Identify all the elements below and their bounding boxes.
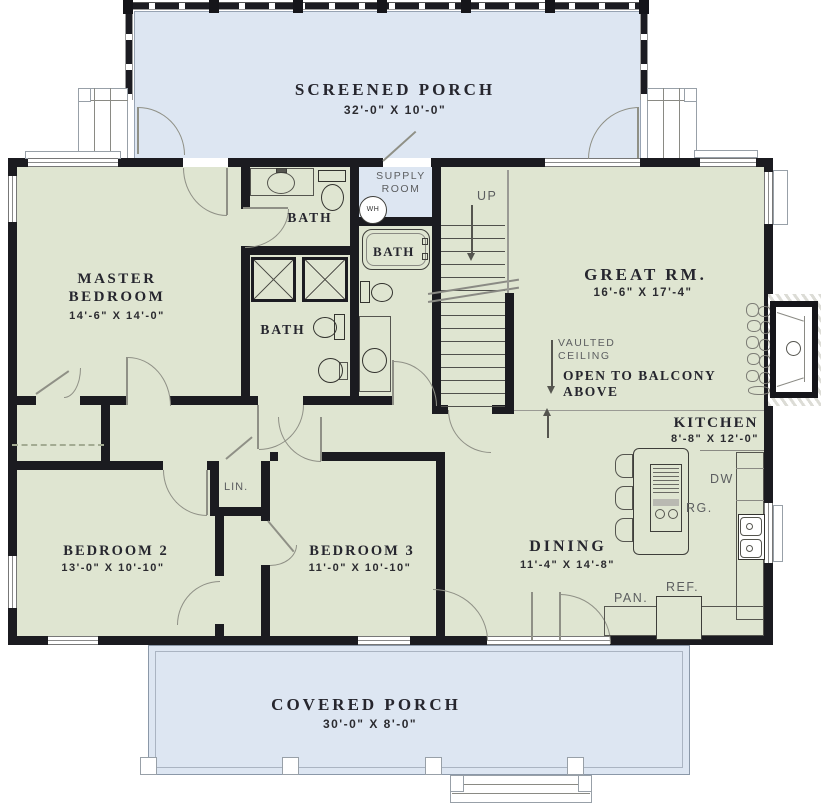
door-great-room-porch	[545, 158, 640, 167]
shower	[302, 257, 348, 302]
room-label-screened-porch: SCREENED PORCH	[245, 80, 545, 100]
room-label-kitchen: KITCHEN	[656, 415, 776, 433]
wall-hall	[303, 396, 393, 405]
window-sill	[694, 150, 758, 158]
firebox-line	[804, 316, 805, 382]
dishwasher-label: DW	[710, 472, 734, 486]
stairs-up-label: UP	[477, 189, 497, 203]
wall-stairs-right	[505, 293, 514, 414]
porch-post	[545, 0, 555, 13]
room-dims-screened-porch: 32'-0" X 10'-0"	[295, 103, 495, 117]
fireplace-stone	[747, 320, 761, 332]
window-bay	[773, 170, 788, 225]
room-dims-master-bedroom: 14'-6" X 14'-0"	[37, 310, 197, 322]
step-post	[450, 775, 464, 792]
open-to-balcony-line1: OPEN TO BALCONY	[563, 368, 753, 384]
door-opening-supply	[383, 158, 431, 167]
window-kitchen-right	[764, 503, 773, 563]
window-bed2-left	[8, 556, 17, 608]
floor-plan: SCREENED PORCH 32'-0" X 10'-0"	[0, 0, 821, 809]
range-grill	[653, 468, 679, 496]
porch-post	[293, 0, 303, 13]
supply-room-label-line1: SUPPLY	[362, 170, 440, 182]
window-great-room-right	[764, 172, 773, 224]
drain	[746, 523, 753, 530]
porch-post	[377, 0, 387, 13]
water-heater-label: WH	[359, 206, 387, 213]
vaulted-ceiling-line2: CEILING	[558, 350, 611, 362]
faucet	[276, 168, 287, 173]
arrow-down-icon	[467, 253, 475, 261]
door-leaf	[531, 592, 533, 640]
refrigerator-label: REF.	[666, 580, 699, 594]
room-label-covered-porch: COVERED PORCH	[216, 695, 516, 715]
refrigerator	[656, 596, 702, 640]
wall-bed-divider-left	[215, 624, 224, 636]
room-label-bath3: BATH	[363, 244, 425, 259]
window-master-left	[8, 176, 17, 222]
fireplace-stone	[747, 353, 760, 365]
step-tread	[452, 784, 590, 785]
sink	[362, 348, 387, 373]
screen-wall-right	[640, 10, 648, 100]
fireplace-stone	[748, 386, 770, 395]
wall-bed3-top	[270, 452, 278, 461]
flue-circle	[786, 341, 801, 356]
porch-post	[461, 0, 471, 13]
drain	[746, 545, 753, 552]
porch-post	[209, 0, 219, 13]
porch-post	[567, 757, 584, 775]
wall-hall	[8, 396, 36, 405]
wall-bed3-top	[322, 452, 445, 461]
stairs-rail-line	[507, 170, 509, 293]
open-to-balcony-line2: ABOVE	[563, 384, 753, 400]
wall-bed2-top	[8, 461, 163, 470]
up-arrow-line	[471, 205, 473, 255]
window-great-room-top	[700, 158, 756, 167]
room-label-master-bedroom: MASTER BEDROOM	[54, 271, 180, 306]
wall-hall	[170, 396, 258, 405]
room-label-bath1: BATH	[275, 210, 345, 226]
fireplace-stone	[746, 370, 759, 382]
room-dims-bedroom-3: 11'-0" X 10'-10"	[285, 562, 435, 574]
counter-line	[736, 468, 764, 469]
burner	[655, 509, 665, 519]
shower	[251, 257, 296, 302]
wall-bed-divider-left	[215, 516, 224, 576]
porch-steps	[450, 775, 592, 803]
stool	[615, 454, 633, 478]
step-tread	[663, 88, 664, 163]
screen-wall-left	[125, 10, 133, 100]
window-bed3-bottom	[358, 636, 410, 645]
vaulted-ceiling-line1: VAULTED	[558, 337, 615, 349]
balcony-arrow-line	[547, 416, 549, 438]
toilet-tank	[360, 281, 370, 303]
window-sill	[773, 505, 783, 562]
wall-bath1-bath2	[241, 246, 350, 255]
room-dims-kitchen: 8'-8" X 12'-0"	[655, 433, 775, 445]
wall-bath-hall-upper	[241, 167, 250, 209]
step-tread	[452, 793, 590, 794]
sink	[318, 358, 343, 383]
door-opening-porch-hall	[183, 158, 228, 167]
room-label-bedroom-2: BEDROOM 2	[41, 543, 191, 560]
arrow-down-icon	[547, 386, 555, 394]
room-dims-bedroom-2: 13'-0" X 10'-10"	[38, 562, 188, 574]
room-label-great-room: GREAT RM.	[558, 265, 733, 285]
porch-post	[282, 757, 299, 775]
burner	[668, 509, 678, 519]
toilet-bowl	[371, 283, 393, 302]
supply-room-label-line2: ROOM	[362, 183, 440, 195]
porch-post	[123, 0, 133, 14]
arrow-up-icon	[543, 408, 551, 416]
toilet-tank	[318, 170, 346, 182]
porch-post	[425, 757, 442, 775]
range-label: RG.	[686, 501, 713, 515]
closet-rod	[12, 444, 104, 446]
window-master-top	[28, 158, 118, 167]
sink	[267, 172, 295, 194]
vaulted-arrow-line	[551, 340, 553, 388]
room-label-dining: DINING	[493, 538, 643, 557]
stairs-lower-run	[441, 302, 505, 412]
wall-linen-bottom	[210, 507, 270, 516]
porch-post	[639, 0, 649, 14]
room-label-bedroom-3: BEDROOM 3	[287, 543, 437, 560]
step-post	[578, 775, 592, 792]
room-dims-dining: 11'-4" X 14'-8"	[490, 559, 645, 571]
pantry-label: PAN.	[614, 591, 648, 605]
wall-closet-right	[101, 396, 110, 470]
room-dims-covered-porch: 30'-0" X 8'-0"	[270, 717, 470, 731]
room-dims-great-room: 16'-6" X 17'-4"	[568, 287, 718, 299]
range-band	[653, 499, 679, 506]
counter-line	[736, 500, 764, 501]
wall-bed-divider-right	[261, 565, 270, 636]
porch-post	[140, 757, 157, 775]
window-bed2-bottom	[48, 636, 98, 645]
fireplace-stone	[746, 336, 759, 349]
step-post	[684, 88, 697, 102]
stool	[615, 486, 633, 510]
floor-transition-line	[514, 410, 764, 411]
linen-label: LIN.	[224, 481, 248, 493]
counter-line	[700, 450, 764, 451]
room-label-bath2: BATH	[248, 322, 318, 338]
wall-bath-center	[350, 167, 359, 405]
step-tread	[679, 88, 680, 163]
step-post	[78, 88, 91, 102]
toilet-bowl	[321, 184, 344, 211]
